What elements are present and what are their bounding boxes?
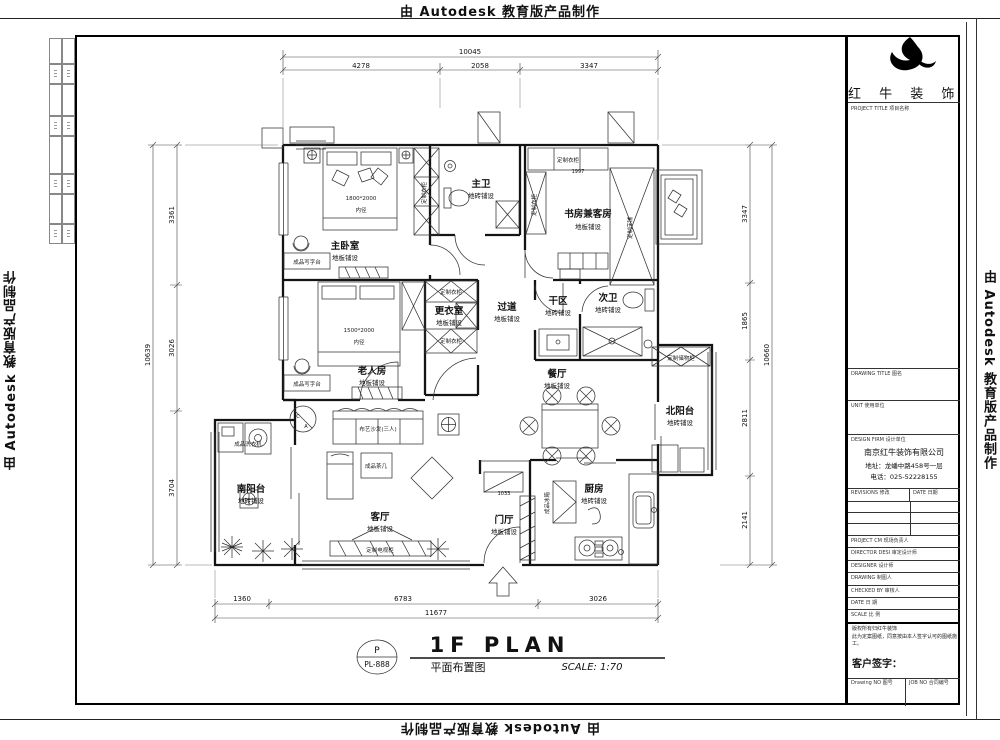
room-north-balcony: 北阳台: [666, 405, 695, 417]
room-corridor: 过道: [497, 301, 517, 313]
dim-right-overall: 10660: [763, 344, 771, 366]
stamp-number: PL-888: [364, 660, 390, 669]
extension-lines: [185, 78, 745, 598]
room-dry-area: 干区: [548, 296, 568, 307]
dim-right-seg: 2141: [741, 511, 749, 529]
label-desk: 成品写字台: [293, 380, 321, 388]
dim-right-seg: 3347: [741, 205, 749, 223]
room-finish: 地砖铺设: [238, 496, 265, 505]
room-kitchen: 厨房: [584, 483, 603, 495]
room-finish: 地板铺设: [359, 378, 386, 387]
room-finish: 地砖铺设: [667, 418, 694, 427]
label-washer: 成品洗衣机: [234, 440, 262, 448]
label-wardrobe: 定制衣柜: [530, 194, 538, 217]
room-finish: 地板铺设: [544, 381, 571, 390]
room-finish: 地板铺设: [367, 524, 394, 533]
label-wardrobe: 定制衣柜: [420, 182, 428, 205]
label-desk: 成品写字台: [293, 258, 321, 266]
stamp-top: P: [374, 646, 380, 656]
dimension-texts: 10045 4278 2058 3347 10639 3361 3026 370…: [144, 48, 771, 617]
room-finish: 地砖铺设: [545, 308, 572, 317]
room-labels: 主卧室 地板铺设 主卫 地砖铺设 书房兼客房 地板铺设 更衣室 地板铺设 过道 …: [237, 178, 695, 536]
room-living: 客厅: [369, 511, 390, 523]
dim-top-seg: 4278: [352, 62, 370, 70]
furniture-labels: 定制衣柜 1800*2000 内径 成品写字台 定制衣柜 定制衣柜 定制床铺 定…: [234, 156, 695, 554]
entry-arrow-icon: [489, 567, 517, 596]
dim-bottom-overall: 11677: [425, 609, 447, 617]
label-bed-size: 内径: [355, 206, 367, 214]
plan-scale: SCALE: 1:70: [561, 662, 622, 673]
label-bed-size: 1800*2000: [346, 196, 377, 202]
label-wardrobe: 定制衣柜: [557, 156, 580, 164]
dim-left-seg: 3026: [168, 339, 176, 357]
dim-top-seg: 2058: [471, 62, 489, 70]
room-study-guest: 书房兼客房: [564, 208, 612, 220]
dim-bottom-seg: 6783: [394, 595, 412, 603]
floor-plan: 10045 4278 2058 3347 10639 3361 3026 370…: [0, 0, 1000, 740]
room-finish: 地板铺设: [491, 527, 518, 536]
plan-title-cn: 平面布置图: [431, 661, 486, 674]
room-elder: 老人房: [357, 365, 387, 377]
room-south-balcony: 南阳台: [237, 483, 266, 495]
room-finish: 地板铺设: [332, 253, 359, 262]
label-storage: 定制储物柜: [667, 354, 695, 362]
room-finish: 地砖铺设: [595, 305, 622, 314]
dimension-lines: [148, 50, 777, 623]
walls: [215, 145, 712, 565]
label-tv-cabinet: 定制电视柜: [366, 546, 394, 554]
room-master-bedroom: 主卧室: [331, 240, 360, 252]
dim-left-overall: 10639: [144, 344, 152, 366]
label-bed-size: 内径: [353, 338, 365, 346]
room-foyer: 门厅: [494, 514, 514, 526]
label-bed: 定制床铺: [626, 217, 634, 240]
dim-left-seg: 3361: [168, 206, 176, 224]
room-second-bath: 次卫: [598, 292, 618, 304]
dim-inner: 1997: [572, 169, 585, 175]
dim-top-overall: 10045: [459, 48, 481, 56]
dim-bottom-seg: 1360: [233, 595, 251, 603]
callout-letter: A: [304, 424, 308, 430]
room-dressing: 更衣室: [435, 305, 464, 317]
room-dining: 餐厅: [546, 368, 567, 380]
label-wardrobe: 定制衣柜: [440, 288, 463, 296]
drawing-sheet: 由 Autodesk 教育版产品制作 由 Autodesk 教育版产品制作 由 …: [0, 0, 1000, 740]
dim-left-seg: 3704: [168, 479, 176, 497]
dim-right-seg: 1865: [741, 312, 749, 330]
room-finish: 地砖铺设: [581, 496, 608, 505]
dim-right-seg: 2811: [741, 409, 749, 427]
furniture: [218, 148, 710, 596]
room-master-bath: 主卫: [471, 178, 491, 190]
sheet-title: P PL-888 1F PLAN 平面布置图 SCALE: 1:70: [357, 633, 665, 674]
dim-bottom-seg: 3026: [589, 595, 607, 603]
room-finish: 地板铺设: [436, 318, 463, 327]
label-wardrobe: 定制衣柜: [440, 337, 463, 345]
dim-top-seg: 3347: [580, 62, 598, 70]
dim-inner: 1033: [498, 491, 511, 497]
label-tea-table: 成品茶几: [365, 462, 388, 470]
label-sofa: 布艺沙发(三人): [359, 425, 396, 433]
label-fridge: 成品冰箱: [543, 492, 551, 515]
room-finish: 地板铺设: [494, 314, 521, 323]
label-bed-size: 1500*2000: [344, 328, 375, 334]
plan-title-en: 1F PLAN: [430, 633, 571, 657]
room-finish: 地砖铺设: [468, 191, 495, 200]
callout-letter: C: [296, 414, 300, 420]
room-finish: 地板铺设: [575, 222, 602, 231]
